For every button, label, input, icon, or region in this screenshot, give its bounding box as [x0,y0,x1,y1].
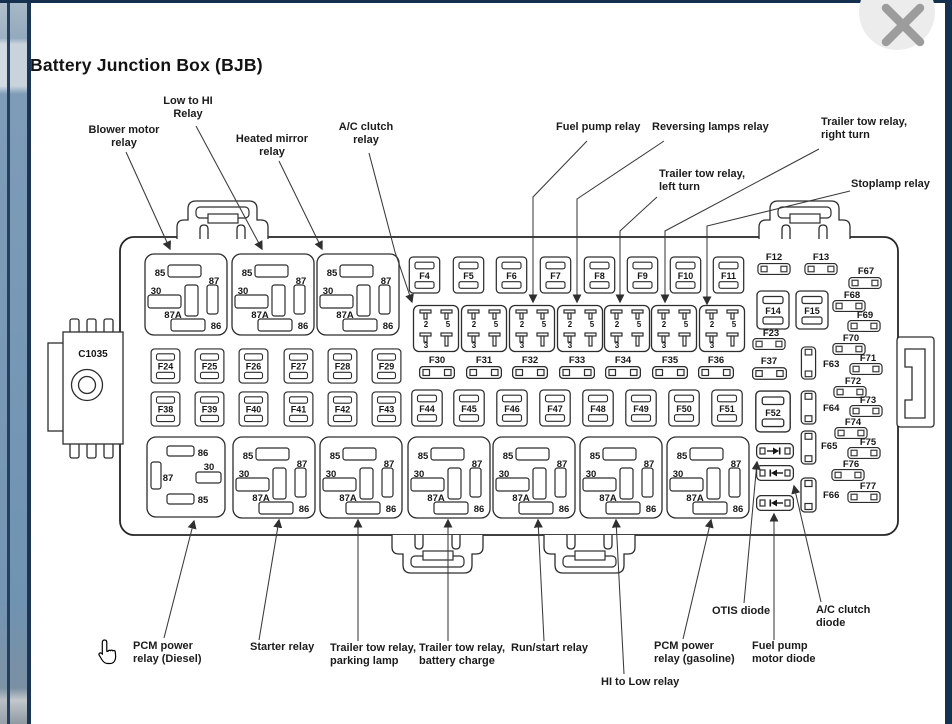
pin-label: 5 [494,320,499,329]
svg-text:F33: F33 [569,355,585,366]
fuse-f7: F7 [540,257,570,293]
fuse-f49: F49 [626,390,656,426]
pin-label: 30 [204,462,215,473]
svg-text:F7: F7 [550,271,561,281]
callout-pcm-gasoline: PCM power relay (gasoline) [654,640,752,666]
small-relay-reversing-lamps: 253 [558,306,603,352]
pin-label: 87A [599,493,617,504]
svg-text:F34: F34 [615,355,632,366]
pin-label: 85 [503,451,514,462]
pin-label: 30 [239,469,250,480]
pin-label: 2 [710,320,715,329]
pin-label: 85 [590,451,601,462]
connector-label: C1035 [78,349,108,360]
mount-bracket-top-left [177,201,268,239]
svg-text:F74: F74 [845,417,862,428]
svg-text:F42: F42 [335,405,351,415]
fuse-f4: F4 [409,257,439,293]
pin-label: 87 [381,276,392,287]
svg-text:F70: F70 [843,333,859,344]
pin-label: 87 [557,459,568,470]
svg-text:F72: F72 [845,376,861,387]
svg-text:F27: F27 [291,362,307,372]
left-scroll-strip-inner[interactable] [10,0,27,724]
pin-label: 85 [330,451,341,462]
svg-text:F71: F71 [860,353,877,364]
pin-label: 87A [251,310,269,321]
relay-trailer-battery-charge: 85873087A86 [408,437,490,518]
pin-label: 30 [499,469,510,480]
fuse-f51: F51 [712,390,742,426]
small-relay-trailer-left: 253 [605,306,650,352]
connector-right [897,337,934,427]
svg-text:F10: F10 [678,271,694,281]
svg-text:F40: F40 [246,405,262,415]
callout-trailer-parking-lamp: Trailer tow relay, parking lamp [330,642,424,668]
fuse-f15: F15 [796,291,828,329]
pin-label: 87A [252,493,270,504]
relay-pcm-diesel: 86873085 [147,437,225,517]
pin-label: 30 [414,469,425,480]
pin-label: 3 [662,341,667,350]
svg-text:F13: F13 [813,252,829,263]
fuse-f28: F28 [328,349,357,383]
svg-text:F65: F65 [821,441,838,452]
pin-label: 85 [155,268,166,279]
close-icon [865,0,941,51]
pin-label: 2 [568,320,573,329]
svg-text:F28: F28 [335,362,351,372]
pin-label: 2 [615,320,620,329]
svg-text:F68: F68 [844,290,860,301]
pin-label: 3 [520,341,525,350]
pin-label: 2 [662,320,667,329]
pin-label: 86 [383,321,394,332]
close-button[interactable] [859,0,935,50]
viewer-window: { "title": "Battery Junction Box (BJB)",… [0,0,952,724]
pin-label: 87 [644,459,655,470]
svg-text:F77: F77 [860,481,876,492]
pin-label: 87A [336,310,354,321]
svg-text:F38: F38 [158,405,174,415]
svg-text:F29: F29 [379,362,395,372]
hand-pointer-icon [96,638,122,668]
pin-label: 30 [323,286,334,297]
pin-label: 86 [211,321,222,332]
pin-label: 5 [590,320,595,329]
svg-text:F9: F9 [637,271,648,281]
fuse-f42: F42 [328,392,357,426]
callout-trailer-left-turn: Trailer tow relay, left turn [659,168,753,194]
small-relay-ac-clutch: 253 [414,306,459,352]
pin-label: 2 [520,320,525,329]
fuse-f29: F29 [372,349,401,383]
pin-label: 85 [198,495,209,506]
bjb-diagram: C1035 85873087A86 85873087A86 85873087A8… [0,0,952,724]
pin-label: 30 [238,286,249,297]
svg-text:F12: F12 [766,252,782,263]
small-relay-stoplamp: 253 [700,306,745,352]
pin-label: 85 [327,268,338,279]
fuse-f43: F43 [372,392,401,426]
callout-ac-clutch-relay: A/C clutch relay [333,121,399,147]
callout-otis-diode: OTIS diode [712,605,770,618]
fuse-f40: F40 [239,392,268,426]
svg-text:F45: F45 [461,404,477,414]
pin-label: 87A [686,493,704,504]
callout-low-to-hi-relay: Low to HI Relay [156,95,220,121]
ac-clutch-diode [757,466,794,481]
callout-blower-motor-relay: Blower motor relay [84,124,164,150]
fuse-f52: F52 [756,391,790,432]
frame-border-left [27,0,31,724]
small-relay-trailer-right: 253 [652,306,697,352]
fuse-f50: F50 [669,390,699,426]
pin-label: 86 [559,504,570,515]
callout-fuel-pump-relay: Fuel pump relay [556,121,640,134]
svg-text:F64: F64 [823,403,840,414]
fuel-pump-motor-diode [757,496,794,511]
callout-stoplamp-relay: Stoplamp relay [851,178,930,191]
relay-hi-to-low: 85873087A86 [580,437,662,518]
fuse-f6: F6 [496,257,526,293]
callout-pcm-diesel: PCM power relay (Diesel) [133,640,225,666]
relay-blower-motor: 85873087A86 [145,254,227,335]
callout-trailer-right-turn: Trailer tow relay, right turn [821,116,915,142]
relay-trailer-parking-lamp: 85873087A86 [320,437,402,518]
callout-fuel-pump-motor-diode: Fuel pump motor diode [752,640,828,666]
pin-label: 87 [472,459,483,470]
svg-text:F41: F41 [291,405,307,415]
pin-label: 87 [163,473,174,484]
pin-label: 30 [326,469,337,480]
pin-label: 3 [615,341,620,350]
svg-text:F6: F6 [506,271,517,281]
pin-label: 5 [684,320,689,329]
pin-label: 85 [418,451,429,462]
pin-label: 87 [296,276,307,287]
svg-text:F46: F46 [504,404,520,414]
pin-label: 87A [427,493,445,504]
relay-pcm-gasoline: 85873087A86 [667,437,749,518]
svg-text:F30: F30 [429,355,445,366]
pin-label: 87 [731,459,742,470]
pin-label: 87A [164,310,182,321]
pin-label: 2 [424,320,429,329]
pin-label: 86 [298,321,309,332]
mount-bracket-bottom-right [544,535,635,573]
fuse-f27: F27 [284,349,313,383]
svg-text:F14: F14 [765,306,781,316]
fuse-f5: F5 [453,257,483,293]
svg-text:F69: F69 [857,310,873,321]
fuse-f9: F9 [627,257,657,293]
fuse-f10: F10 [670,257,700,293]
svg-text:F48: F48 [590,404,606,414]
svg-text:F8: F8 [594,271,605,281]
svg-text:F36: F36 [708,355,724,366]
fuse-f41: F41 [284,392,313,426]
svg-text:F5: F5 [463,271,474,281]
svg-text:F67: F67 [858,266,874,277]
pin-label: 87A [339,493,357,504]
fuse-f11: F11 [713,257,743,293]
svg-text:F49: F49 [633,404,649,414]
relay-low-to-hi: 85873087A86 [232,254,314,335]
callout-starter-relay: Starter relay [250,641,314,654]
svg-text:F66: F66 [823,490,839,501]
pin-label: 3 [424,341,429,350]
svg-text:F32: F32 [522,355,538,366]
pin-label: 30 [673,469,684,480]
callout-run-start-relay: Run/start relay [511,642,588,655]
relay-run-start: 85873087A86 [493,437,575,518]
fuse-f24: F24 [151,349,180,383]
fuse-f39: F39 [195,392,224,426]
mount-bracket-bottom-left [392,535,483,573]
svg-text:F15: F15 [804,306,820,316]
frame-border-top [0,0,952,3]
small-relay-2: 253 [462,306,507,352]
svg-text:F35: F35 [662,355,679,366]
fuse-f8: F8 [584,257,614,293]
pin-label: 87A [512,493,530,504]
pin-label: 85 [242,268,253,279]
svg-text:F25: F25 [202,362,218,372]
callout-trailer-battery-charge: Trailer tow relay, battery charge [419,642,513,668]
fuse-f44: F44 [412,390,442,426]
svg-text:F73: F73 [860,395,876,406]
mount-bracket-top-right [759,201,850,239]
frame-border-right [945,0,952,724]
callout-ac-clutch-diode: A/C clutch diode [816,604,882,630]
svg-text:F63: F63 [823,359,839,370]
fuse-f26: F26 [239,349,268,383]
fuse-f38: F38 [151,392,180,426]
svg-text:F37: F37 [761,356,777,367]
pin-label: 87 [209,276,220,287]
fuse-f25: F25 [195,349,224,383]
pin-label: 86 [386,504,397,515]
svg-text:F4: F4 [419,271,430,281]
svg-text:F24: F24 [158,362,174,372]
svg-text:F50: F50 [676,404,692,414]
svg-text:F75: F75 [860,437,877,448]
pin-label: 2 [472,320,477,329]
fuse-f48: F48 [583,390,613,426]
fuse-f45: F45 [454,390,484,426]
svg-text:F26: F26 [246,362,262,372]
callout-reversing-lamps-relay: Reversing lamps relay [652,121,769,134]
svg-text:F52: F52 [765,408,781,418]
pin-label: 5 [637,320,642,329]
pin-label: 85 [243,451,254,462]
callout-heated-mirror-relay: Heated mirror relay [230,133,314,159]
callout-hi-to-low-relay: HI to Low relay [601,676,679,689]
fuse-f14: F14 [757,291,789,329]
svg-text:F44: F44 [419,404,435,414]
pin-label: 30 [586,469,597,480]
pin-label: 3 [710,341,715,350]
relay-heated-mirror: 85873087A86 [317,254,399,335]
pin-label: 3 [568,341,573,350]
pin-label: 85 [677,451,688,462]
pin-label: 5 [446,320,451,329]
svg-text:F47: F47 [547,404,563,414]
pin-label: 30 [151,286,162,297]
pin-label: 3 [472,341,477,350]
pin-label: 86 [474,504,485,515]
fuse-f47: F47 [540,390,570,426]
pin-label: 5 [732,320,737,329]
connector-c1035: C1035 [48,319,123,458]
pin-label: 86 [646,504,657,515]
relay-starter: 85873087A86 [233,437,315,518]
small-relay-fuel-pump: 253 [510,306,555,352]
otis-diode [757,444,794,459]
pin-label: 86 [198,448,209,459]
pin-label: 5 [542,320,547,329]
pin-label: 86 [299,504,310,515]
svg-text:F11: F11 [721,271,736,281]
svg-text:F43: F43 [379,405,395,415]
svg-text:F51: F51 [719,404,735,414]
svg-text:F31: F31 [476,355,493,366]
fuse-f46: F46 [497,390,527,426]
svg-text:F23: F23 [763,328,779,339]
pin-label: 87 [384,459,395,470]
svg-text:F76: F76 [843,459,859,470]
pin-label: 87 [297,459,308,470]
svg-text:F39: F39 [202,405,218,415]
pin-label: 86 [733,504,744,515]
